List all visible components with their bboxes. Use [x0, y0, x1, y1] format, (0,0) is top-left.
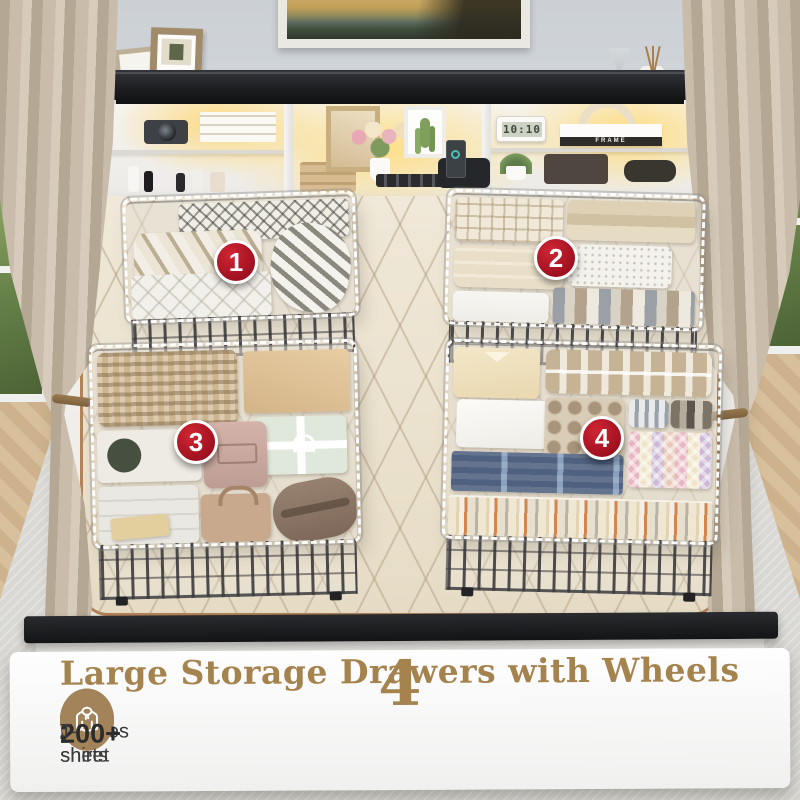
- cosmetic-jar: [210, 172, 225, 192]
- wire-drawer-front: [98, 539, 357, 600]
- wire-drawer-front: [445, 535, 712, 596]
- smartphone: [446, 140, 466, 178]
- white-sheet: [452, 291, 549, 324]
- gray-folded-stack: [628, 399, 669, 428]
- flower-bouquet: [352, 122, 408, 160]
- camera-decor: [144, 120, 188, 144]
- marketing-banner: 4 Large Storage Drawers with Wheels 40+ …: [10, 648, 791, 792]
- drawer-badge-3: 3: [174, 420, 218, 464]
- kraft-box: [243, 349, 350, 414]
- book-stack: [200, 112, 276, 142]
- drawer-badge-4: 4: [580, 416, 624, 460]
- desk-organizer: [544, 154, 608, 184]
- decor-books: FRAME: [560, 124, 662, 146]
- folded-white-shirt: [456, 399, 549, 449]
- headboard-top-shelf: [102, 70, 700, 106]
- folded-beige-blanket: [567, 200, 696, 244]
- shelf-pillar: [284, 104, 293, 200]
- gift-box: [254, 415, 347, 475]
- wicker-basket: [97, 350, 239, 427]
- perfume-bottle: [128, 166, 139, 192]
- tan-tote-bag: [200, 493, 271, 543]
- potted-plant: [500, 148, 532, 174]
- feature-label: T-shirts: [60, 720, 108, 768]
- taupe-folded-stack: [670, 400, 713, 429]
- book-spine-label: FRAME: [560, 137, 662, 146]
- storage-drawer-3: [93, 343, 358, 545]
- perfume-bottle: [144, 171, 153, 192]
- wireless-charging-dock: [438, 158, 490, 188]
- white-quilt: [131, 271, 272, 320]
- footboard-rail: [24, 612, 778, 644]
- headboard-storage-shelves: 10:10 FRAME: [108, 104, 694, 200]
- clock-display: 10:10: [502, 122, 542, 137]
- drawer-badge-1: 1: [214, 240, 258, 284]
- valet-tray: [624, 160, 676, 182]
- folded-cream-shirt: [453, 347, 540, 399]
- frame-art: [161, 38, 192, 65]
- headline-text: Large Storage Drawers with Wheels: [60, 650, 740, 694]
- underwear-organizer: [627, 431, 712, 489]
- drawer-badge-2: 2: [534, 236, 578, 280]
- product-photo: 10:10 FRAME: [0, 0, 800, 800]
- folded-clothes-stack: [552, 287, 695, 327]
- perfume-bottle: [176, 173, 185, 192]
- sock-organizer: [448, 495, 713, 541]
- banner-title: 4 Large Storage Drawers with Wheels: [10, 650, 790, 718]
- rolled-clothes-tray: [545, 349, 712, 397]
- wall-painting: [278, 0, 530, 48]
- perfume-bottle: [158, 165, 171, 192]
- leather-duffel: [268, 472, 358, 545]
- drawer-3-contents: [93, 343, 358, 545]
- shelf-divider: [108, 150, 288, 154]
- waffle-towel: [567, 244, 672, 289]
- perfume-bottle: [192, 169, 203, 192]
- charging-ring: [451, 150, 460, 159]
- digital-clock: 10:10: [496, 116, 546, 142]
- cactus-print: [404, 106, 446, 158]
